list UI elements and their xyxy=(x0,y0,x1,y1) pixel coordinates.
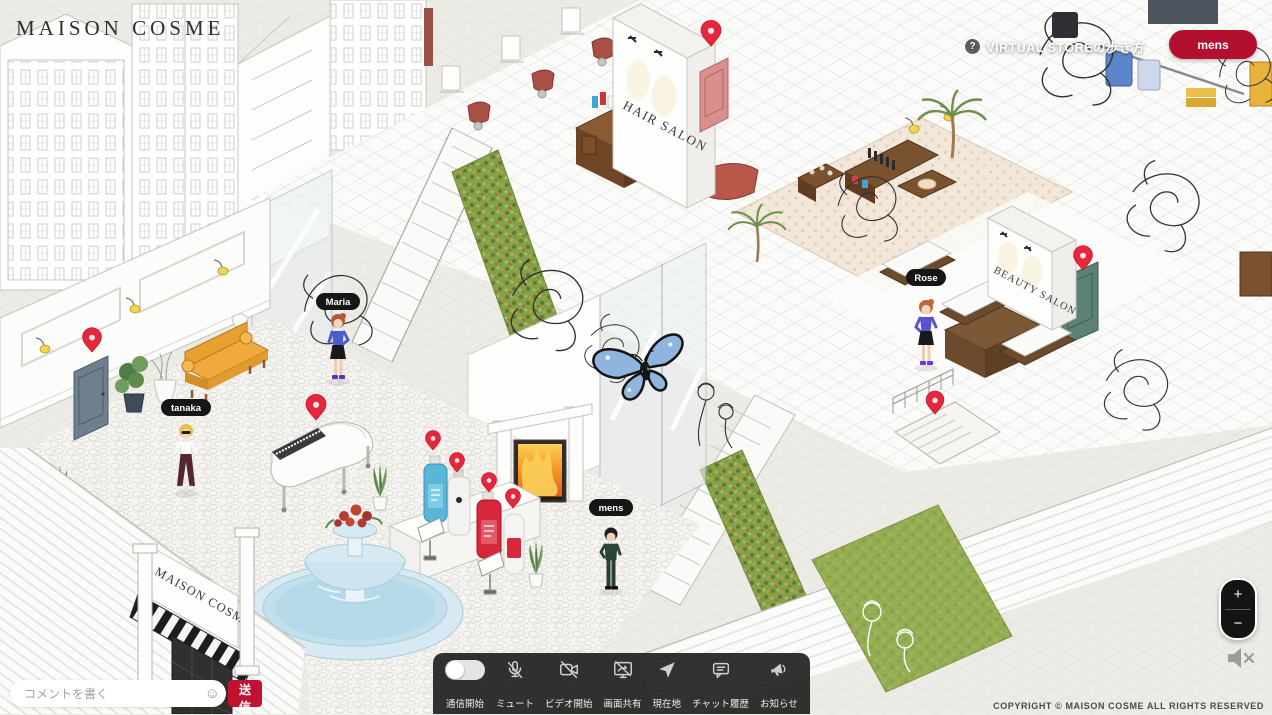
chat-history-label: チャット履歴 xyxy=(692,696,749,710)
notice-label: お知らせ xyxy=(760,696,798,710)
accent-wall xyxy=(424,8,433,66)
screen-share-label: 画面共有 xyxy=(604,696,642,710)
help-link-label: VIRTUAL STOREの歩き方 xyxy=(986,37,1145,56)
svg-text:mens: mens xyxy=(599,503,624,514)
copyright-text: COPYRIGHT © MAISON COSME ALL RIGHTS RESE… xyxy=(993,701,1264,711)
video-off-icon xyxy=(558,658,580,681)
zoom-in-button[interactable]: + xyxy=(1221,580,1255,609)
giant-bottle-red xyxy=(477,492,501,558)
voice-connect-toggle[interactable] xyxy=(445,660,485,680)
hair-salon-sign: HAIR SALON xyxy=(613,4,728,208)
chat-bubble-icon xyxy=(710,658,732,681)
mens-button[interactable]: mens xyxy=(1169,30,1257,59)
giant-bottle-white xyxy=(448,470,470,535)
name-tag-rose: Rose xyxy=(906,269,946,286)
speaker-muted-icon[interactable] xyxy=(1225,645,1255,676)
mute-label: ミュート xyxy=(496,696,534,710)
virtual-store-scene: HAIR SALON xyxy=(0,0,1272,714)
emoji-icon[interactable]: ☺ xyxy=(205,686,220,701)
svg-text:Maria: Maria xyxy=(326,297,352,308)
svg-text:tanaka: tanaka xyxy=(171,403,202,414)
voice-connect-label: 通信開始 xyxy=(446,696,484,710)
app-logo: MAISON COSME xyxy=(16,16,224,41)
zoom-out-button[interactable]: − xyxy=(1221,610,1255,639)
mic-muted-icon xyxy=(504,658,526,681)
question-icon: ? xyxy=(965,39,980,54)
send-button[interactable]: 送信 xyxy=(228,680,262,707)
giant-bottle-blue xyxy=(424,456,447,522)
notice-item[interactable]: お知らせ xyxy=(760,658,798,710)
name-tag-maria: Maria xyxy=(316,293,360,310)
name-tag-mens: mens xyxy=(589,499,633,516)
name-tag-tanaka: tanaka xyxy=(161,399,211,416)
help-link[interactable]: ? VIRTUAL STOREの歩き方 xyxy=(965,37,1145,56)
video-label: ビデオ開始 xyxy=(545,696,593,710)
comment-input[interactable] xyxy=(10,680,226,707)
location-item[interactable]: 現在地 xyxy=(653,658,682,710)
megaphone-icon xyxy=(768,658,790,681)
location-label: 現在地 xyxy=(653,696,682,710)
giant-tube-white xyxy=(504,514,524,574)
voice-connect-item[interactable]: 通信開始 xyxy=(445,658,485,710)
location-arrow-icon xyxy=(656,658,678,681)
zoom-control: + − xyxy=(1219,578,1257,640)
screen-share-off-icon xyxy=(612,658,634,681)
svg-text:Rose: Rose xyxy=(914,273,937,284)
mute-item[interactable]: ミュート xyxy=(496,658,534,710)
video-item[interactable]: ビデオ開始 xyxy=(545,658,593,710)
screen-share-item[interactable]: 画面共有 xyxy=(604,658,642,710)
chat-history-item[interactable]: チャット履歴 xyxy=(692,658,749,710)
bottom-toolbar: 通信開始 ミュート ビデオ開始 画面共有 xyxy=(433,653,810,714)
chat-bar: ☺ 送信 xyxy=(10,680,262,707)
